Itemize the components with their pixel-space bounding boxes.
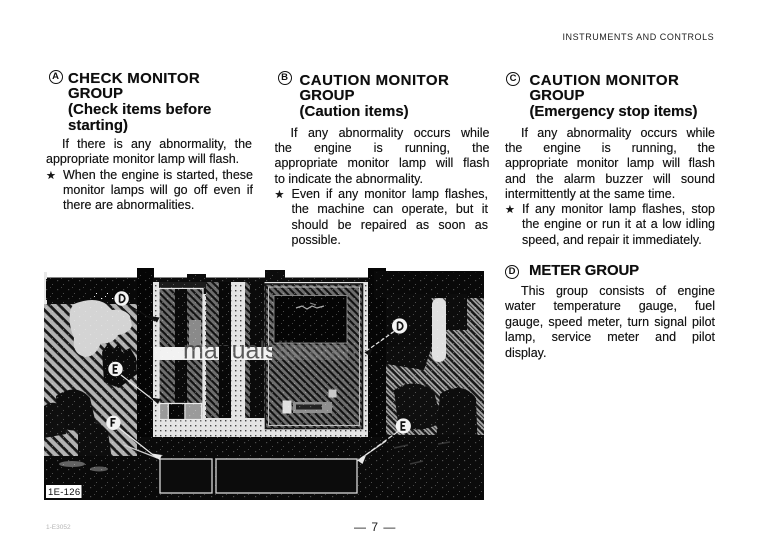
svg-text:1E-126: 1E-126 (48, 487, 80, 498)
